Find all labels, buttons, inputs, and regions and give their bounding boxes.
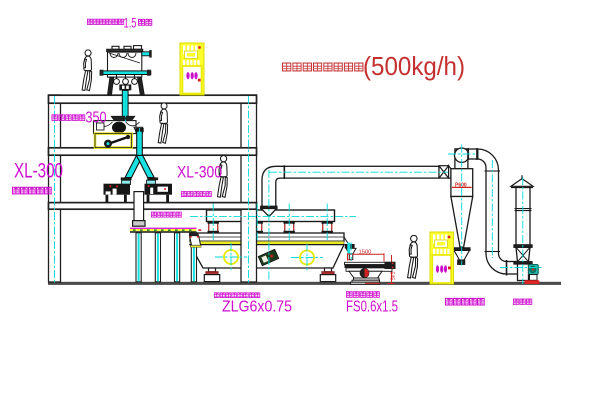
svg-text:(500kg/h): (500kg/h) [363,51,465,81]
svg-text:XL-300: XL-300 [14,159,63,183]
svg-text:FS0.6x1.5: FS0.6x1.5 [346,299,398,316]
svg-text:545: 545 [388,272,394,281]
svg-text:P600: P600 [455,182,467,188]
svg-text:350: 350 [86,110,107,127]
svg-text:1500: 1500 [359,249,372,255]
svg-text:XL-300: XL-300 [177,163,222,182]
svg-text:1.5: 1.5 [124,15,137,31]
svg-text:ZLG6x0.75: ZLG6x0.75 [222,299,292,316]
